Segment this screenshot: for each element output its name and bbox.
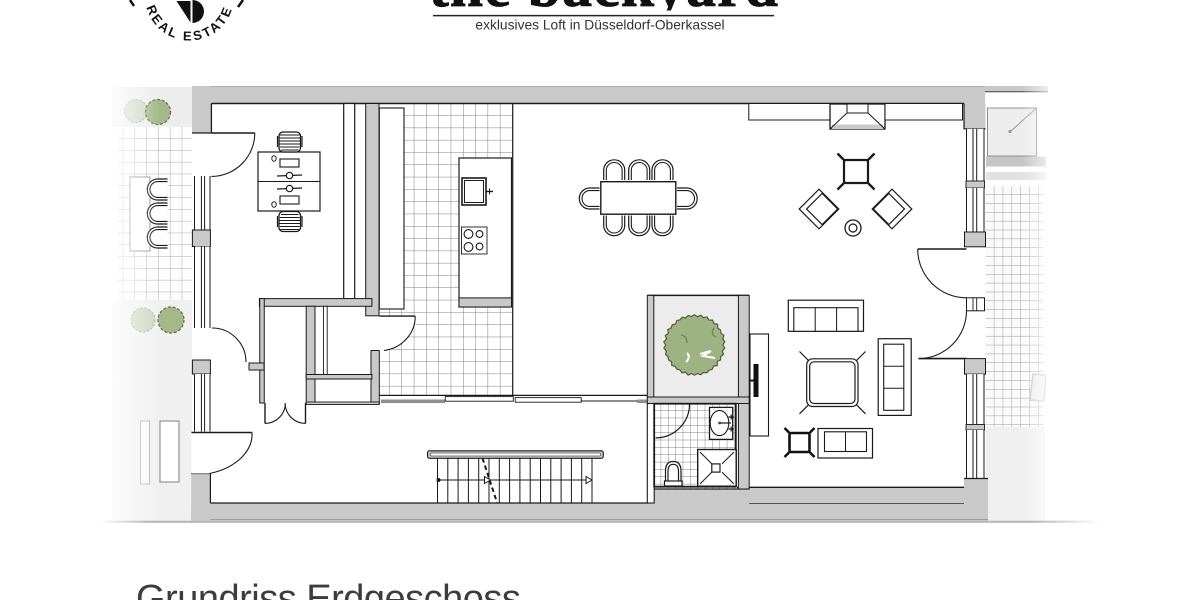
svg-text:Grundriss Erdgeschoss: Grundriss Erdgeschoss bbox=[136, 578, 520, 600]
svg-text:exklusives Loft in Düsseldorf-: exklusives Loft in Düsseldorf-Oberkassel bbox=[475, 18, 724, 33]
